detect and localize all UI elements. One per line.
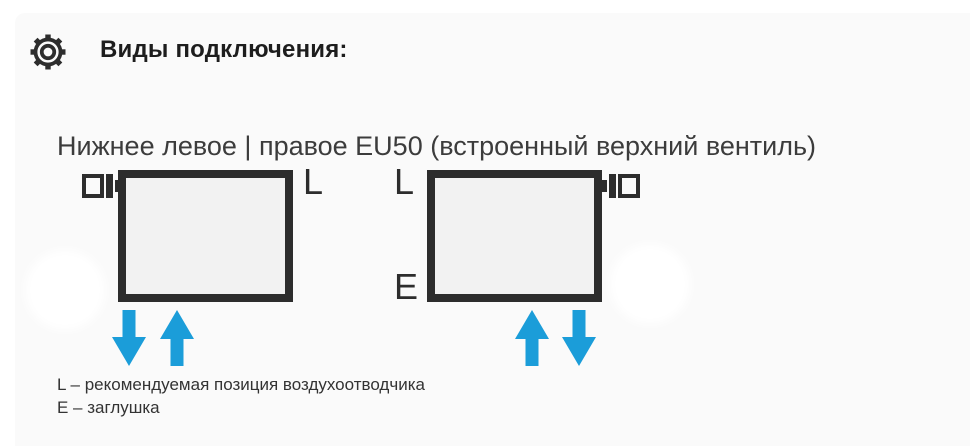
arrow-down-icon <box>562 310 596 366</box>
arrow-up-icon <box>160 310 194 366</box>
gear-icon <box>28 31 68 73</box>
valve-icon <box>82 174 121 198</box>
radiator-body <box>427 170 602 302</box>
plug-label: E <box>394 269 418 305</box>
watermark-circle <box>25 250 105 330</box>
legend: L – рекомендуемая позиция воздухоотводчи… <box>57 373 425 419</box>
valve-bar-icon <box>106 174 113 198</box>
valve-bar-icon <box>609 174 616 198</box>
radiator-body <box>118 170 293 302</box>
valve-body-icon <box>82 174 104 198</box>
valve-body-icon <box>618 174 640 198</box>
arrow-down-icon <box>112 310 146 366</box>
arrow-up-icon <box>515 310 549 366</box>
air-vent-label: L <box>394 164 414 200</box>
page-title: Виды подключения: <box>100 38 348 62</box>
air-vent-label: L <box>303 164 323 200</box>
legend-line-plug: E – заглушка <box>57 396 425 419</box>
legend-line-air-vent: L – рекомендуемая позиция воздухоотводчи… <box>57 373 425 396</box>
valve-icon <box>601 174 640 198</box>
valve-stub-icon <box>601 180 607 192</box>
connection-type-subtitle: Нижнее левое | правое EU50 (встроенный в… <box>57 131 816 161</box>
watermark-circle <box>610 244 690 324</box>
